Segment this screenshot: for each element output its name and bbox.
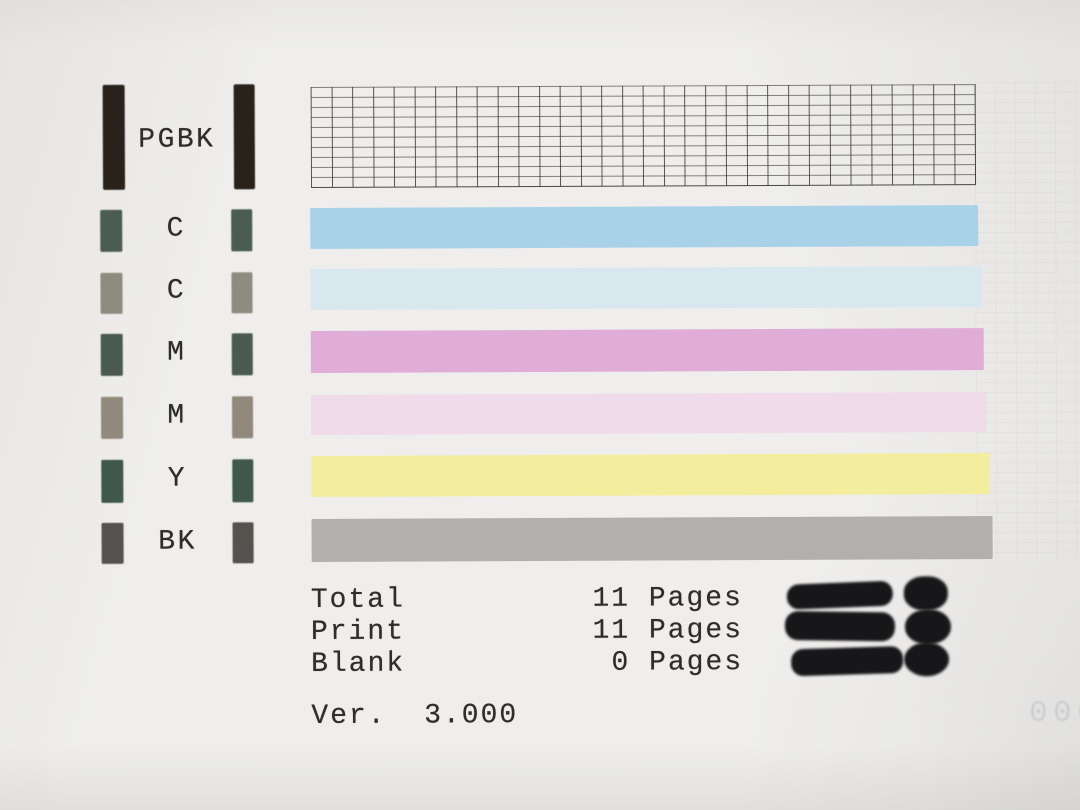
cyan-marker-left	[100, 210, 122, 252]
printer-test-page-photo: PGBK C C M M Y BK	[0, 0, 1080, 810]
print-value: 11 Pages	[592, 615, 743, 648]
paper-sheet: PGBK C C M M Y BK	[0, 0, 1080, 810]
light-cyan-row-label: C	[159, 276, 193, 308]
light-cyan-marker-right	[231, 272, 252, 313]
blank-pages-row: Blank 0 Pages	[311, 647, 743, 681]
black-row-label: BK	[152, 526, 204, 558]
ink-blot-dot-1	[904, 576, 948, 610]
pgbk-row-label: PGBK	[135, 124, 219, 156]
pgbk-marker-right	[234, 84, 255, 189]
ink-blot-stroke-1	[786, 581, 893, 610]
yellow-ink-bar	[311, 453, 989, 497]
magenta-marker-left	[101, 334, 123, 376]
light-magenta-marker-right	[232, 396, 253, 438]
ink-blot-dot-2	[905, 609, 951, 644]
light-magenta-marker-left	[101, 397, 123, 439]
total-pages-row: Total 11 Pages	[311, 583, 743, 617]
ink-blot-stroke-3	[791, 646, 904, 676]
yellow-marker-right	[232, 459, 253, 502]
total-label: Total	[311, 585, 405, 617]
yellow-marker-left	[101, 460, 123, 503]
light-magenta-ink-bar	[311, 392, 986, 435]
pgbk-marker-left	[103, 85, 125, 190]
version-text: Ver. 3.000	[311, 700, 518, 733]
ink-blot-stroke-2	[785, 611, 895, 641]
total-value: 11 Pages	[592, 583, 743, 616]
pgbk-nozzle-check-grid	[311, 84, 976, 188]
page-counter-block: Total 11 Pages Print 11 Pages Blank 0 Pa…	[311, 583, 743, 681]
cyan-row-label: C	[159, 214, 193, 246]
show-through-grid	[975, 82, 1080, 560]
magenta-marker-right	[232, 333, 253, 375]
blank-value: 0 Pages	[611, 647, 743, 680]
black-ink-bar	[311, 516, 992, 562]
print-pages-row: Print 11 Pages	[311, 615, 743, 649]
cyan-marker-right	[231, 209, 252, 251]
ink-blot-dot-3	[904, 642, 949, 676]
black-marker-left	[102, 523, 124, 564]
blank-label: Blank	[311, 649, 405, 681]
yellow-row-label: Y	[160, 464, 194, 496]
magenta-row-label: M	[160, 338, 194, 370]
light-cyan-ink-bar	[310, 266, 981, 310]
black-marker-right	[233, 522, 254, 563]
print-label: Print	[311, 617, 405, 649]
light-cyan-marker-left	[100, 273, 122, 314]
ink-blot-cluster	[0, 0, 1078, 2]
show-through-digits: 000	[1029, 697, 1080, 731]
cyan-ink-bar	[310, 205, 978, 249]
magenta-ink-bar	[311, 328, 984, 373]
light-magenta-row-label: M	[160, 401, 194, 433]
